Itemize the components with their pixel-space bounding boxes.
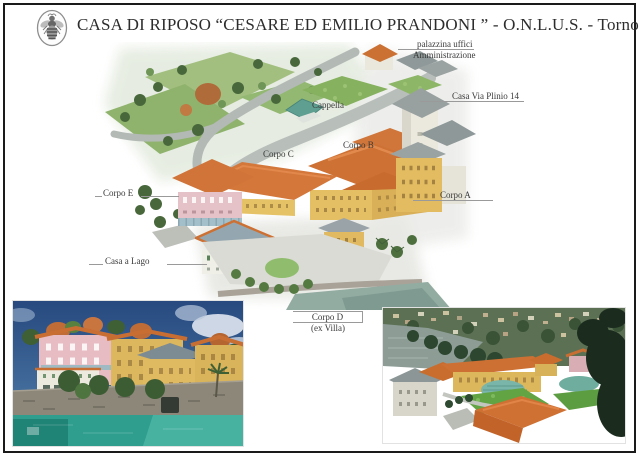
page-title: CASA DI RIPOSO “CESARE ED EMILIO PRANDON… — [77, 15, 639, 35]
label-connector-line — [141, 196, 179, 197]
label-casa-via-plinio: Casa Via Plinio 14 — [420, 91, 524, 102]
label-connector-line — [89, 264, 103, 265]
label-connector-line — [167, 264, 207, 265]
label-text: Amministrazione — [398, 50, 474, 60]
main-aerial-view — [90, 42, 480, 310]
label-palazzina-uffici: palazzina uffici Amministrazione — [398, 39, 474, 60]
label-corpo-c: Corpo C — [263, 149, 294, 159]
bee-emblem-icon — [34, 8, 70, 48]
label-casa-a-lago: Casa a Lago — [105, 256, 149, 266]
label-connector-line — [95, 196, 102, 197]
lake-water — [13, 415, 243, 446]
label-text: Corpo A — [413, 190, 493, 201]
label-text: palazzina uffici — [398, 39, 474, 50]
label-corpo-a: Corpo A — [413, 190, 493, 201]
foreground-trees — [577, 308, 625, 437]
label-corpo-d: Corpo D (ex Villa) — [293, 311, 363, 333]
label-text: Casa Via Plinio 14 — [420, 91, 524, 102]
lakefront-view — [13, 301, 243, 446]
label-text: Corpo D — [293, 311, 363, 323]
label-corpo-e: Corpo E — [103, 188, 133, 198]
label-corpo-b: Corpo B — [343, 140, 374, 150]
label-text: (ex Villa) — [293, 323, 363, 333]
label-cappella: Cappella — [312, 100, 344, 110]
brochure-page: CASA DI RIPOSO “CESARE ED EMILIO PRANDON… — [0, 0, 640, 457]
hillside-view — [383, 308, 625, 443]
